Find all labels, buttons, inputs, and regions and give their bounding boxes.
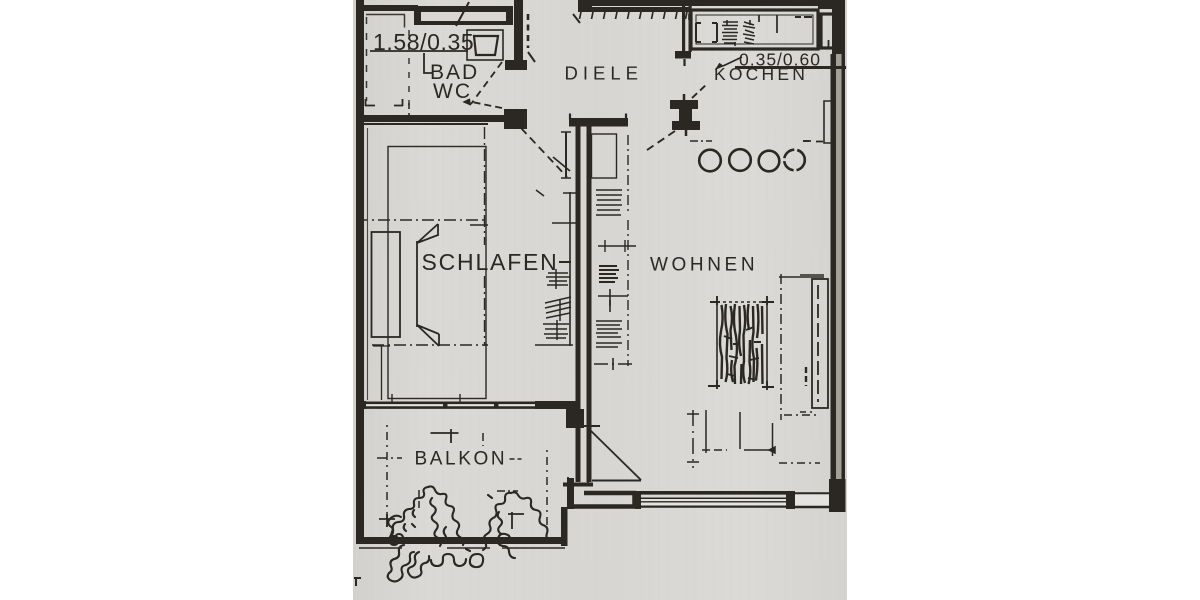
svg-text:KOCHEN: KOCHEN bbox=[714, 64, 808, 84]
svg-text:BALKON: BALKON bbox=[415, 449, 508, 470]
svg-text:DIELE: DIELE bbox=[565, 63, 643, 84]
svg-text:WC: WC bbox=[433, 80, 472, 103]
svg-text:WOHNEN: WOHNEN bbox=[650, 255, 758, 276]
svg-text:SCHLAFEN: SCHLAFEN bbox=[422, 249, 559, 275]
svg-text:1.58/0.35: 1.58/0.35 bbox=[373, 29, 474, 55]
